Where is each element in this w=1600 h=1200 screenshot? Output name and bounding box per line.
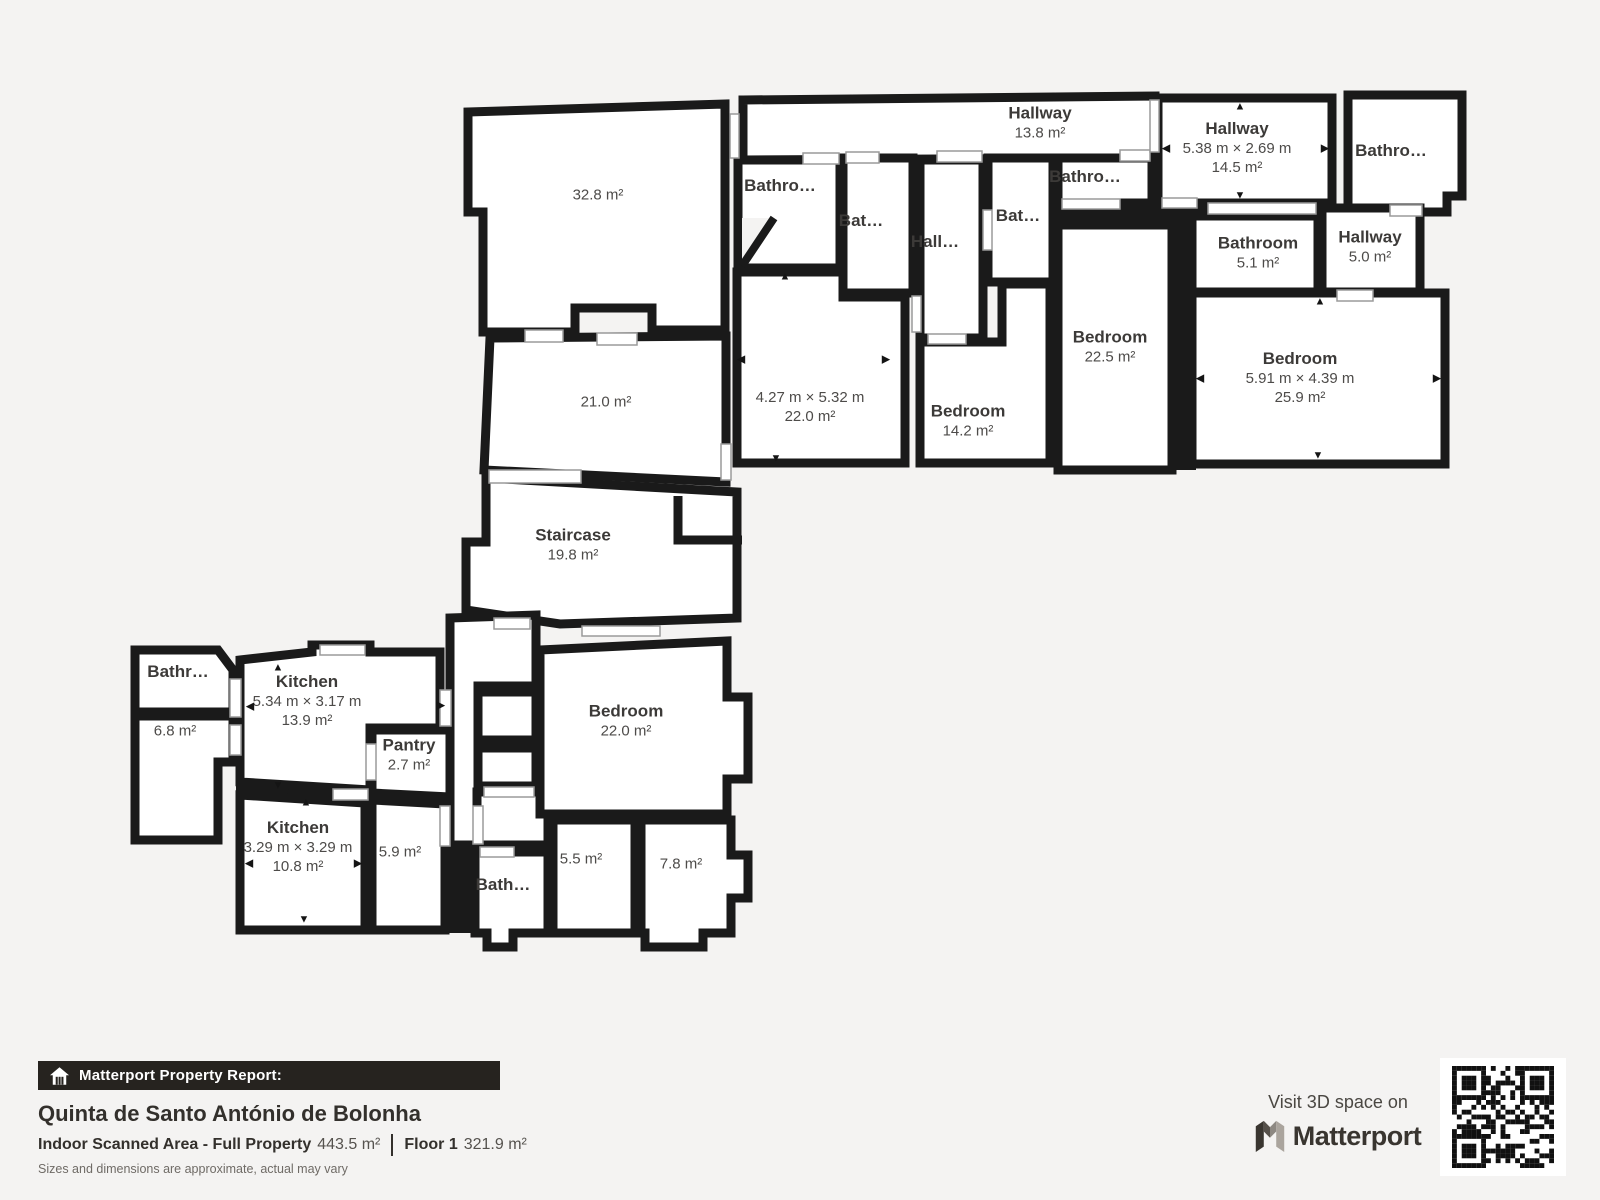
closet-b (478, 748, 536, 786)
qr-code-pattern (1452, 1066, 1554, 1168)
room-hallway-5-0 (1322, 208, 1420, 292)
room-hall-corridor (920, 160, 983, 338)
room-pantry (372, 730, 450, 797)
matterport-logo-icon (1255, 1120, 1285, 1152)
property-title: Quinta de Santo António de Bolonha (38, 1101, 421, 1127)
room-bath-bottom (475, 852, 548, 947)
room-staircase (466, 478, 737, 624)
room-5-5 (553, 820, 635, 933)
disclaimer-text: Sizes and dimensions are approximate, ac… (38, 1162, 348, 1176)
room-bathroom-mid-left (843, 158, 913, 293)
room-bedroom-22-5 (1058, 225, 1172, 470)
room-hallway-14-5 (1158, 98, 1332, 203)
visit-3d-cta: Visit 3D space on Matterport (1248, 1092, 1428, 1152)
stats-divider (391, 1134, 393, 1156)
matterport-brand-name: Matterport (1293, 1121, 1422, 1152)
room-7-8 (641, 820, 748, 947)
property-report-page: 32.8 m²21.0 m²Staircase19.8 m²Hallway13.… (0, 0, 1600, 1200)
area-value: 443.5 m² (317, 1136, 380, 1154)
room-kitchen-10-8 (240, 795, 365, 930)
floor-label: Floor 1 (404, 1136, 457, 1154)
room-6-8 (135, 716, 233, 840)
room-bathroom-mid-right (988, 158, 1053, 282)
scan-stats: Indoor Scanned Area - Full Property 443.… (38, 1134, 527, 1156)
matterport-brand: Matterport (1248, 1120, 1428, 1152)
report-banner-label: Matterport Property Report: (79, 1067, 282, 1084)
room-bedroom-22-0 (540, 641, 748, 814)
room-bathroom-bottom-left (135, 650, 233, 712)
room-bedroom-25-9 (1192, 293, 1445, 464)
visit-3d-label: Visit 3D space on (1248, 1092, 1428, 1113)
floor-plan (0, 0, 1600, 1200)
room-21-0 (484, 336, 726, 482)
room-32-8 (468, 104, 725, 332)
qr-code (1440, 1058, 1566, 1176)
closet-a (478, 692, 536, 740)
house-icon (50, 1067, 69, 1085)
room-22-0-upper (737, 272, 905, 463)
room-walls (135, 95, 1462, 947)
room-bathroom-5-1 (1192, 216, 1318, 292)
report-banner: Matterport Property Report: (38, 1061, 500, 1090)
room-bathroom-mid (1058, 158, 1152, 203)
floor-value: 321.9 m² (464, 1136, 527, 1154)
room-bathroom-top-right (1348, 95, 1462, 212)
area-label: Indoor Scanned Area - Full Property (38, 1136, 311, 1154)
room-5-9 (372, 800, 445, 930)
